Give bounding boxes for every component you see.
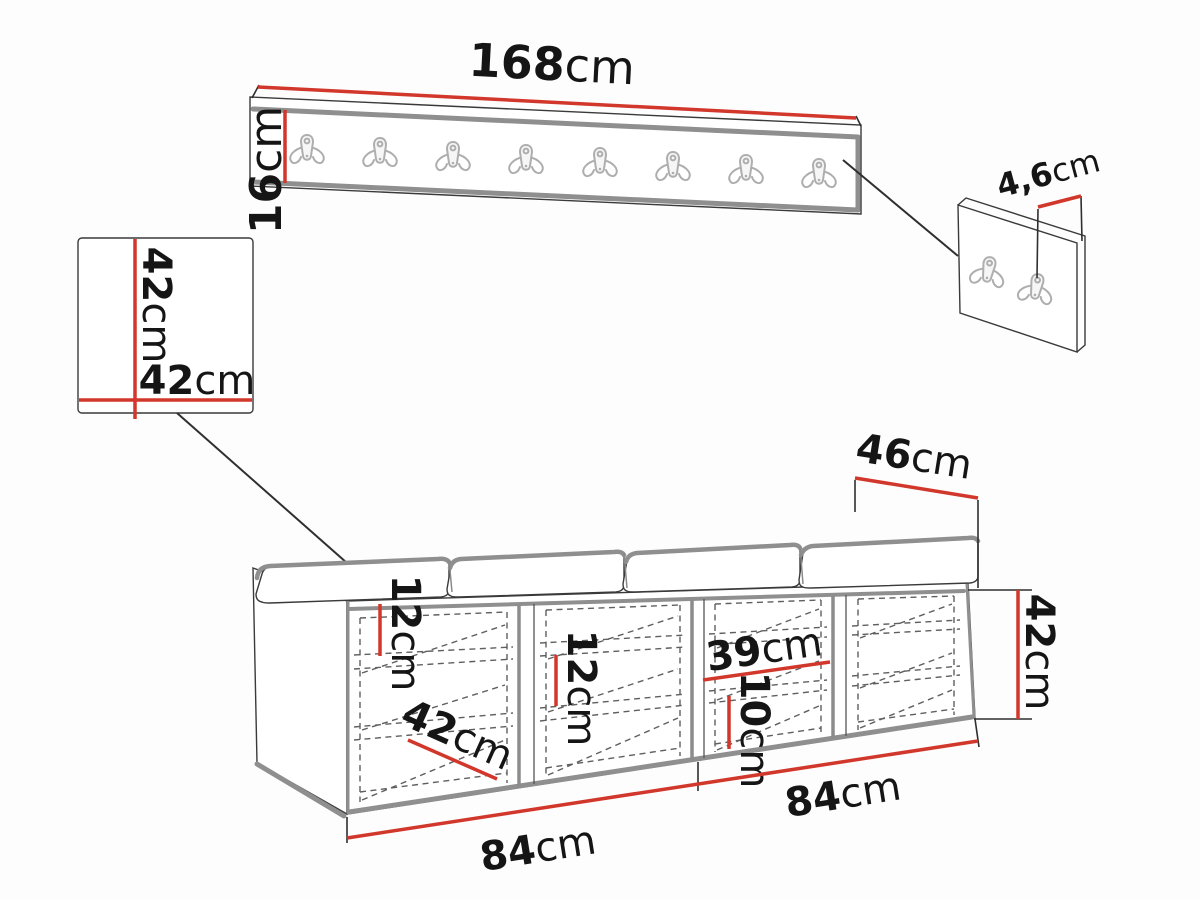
bench-height-label: 42cm [1016, 594, 1062, 711]
coat-rack: 168cm 16cm [241, 33, 861, 234]
bench-width-left-label: 84cm [477, 817, 599, 881]
coat-rack-height-label: 16cm [241, 106, 292, 234]
dim-bottom-gap: 10cm [729, 672, 777, 789]
dim-coat-rack-height: 16cm [241, 106, 292, 234]
square-panel-height-label: 42cm [133, 247, 179, 364]
bottom-gap-label: 10cm [731, 672, 777, 789]
dim-bench-height: 42cm [968, 590, 1062, 719]
furniture-dimension-diagram: 168cm 16cm 42cm 42cm 4,6cm [0, 0, 1200, 900]
leader-square-panel-to-bench [177, 413, 347, 563]
dim-shelf-gap-top: 12cm [380, 575, 428, 692]
square-wall-panel: 42cm 42cm [78, 238, 255, 419]
coat-rack-width-label: 168cm [467, 33, 636, 96]
small-hook-panel: 4,6cm [958, 141, 1104, 352]
shelf-gap-middle-label: 12cm [558, 630, 604, 747]
bench-left-side [253, 568, 347, 814]
square-panel-width-label: 42cm [139, 358, 256, 404]
storage-bench: 46cm 42cm 12cm 12cm 39cm 10cm 42cm [253, 425, 1062, 881]
bench-width-right-label: 84cm [782, 763, 904, 827]
hook-panel-depth-label: 4,6cm [992, 141, 1104, 205]
dim-shelf-gap-middle: 12cm [556, 630, 604, 747]
shelf-gap-top-label: 12cm [382, 575, 428, 692]
